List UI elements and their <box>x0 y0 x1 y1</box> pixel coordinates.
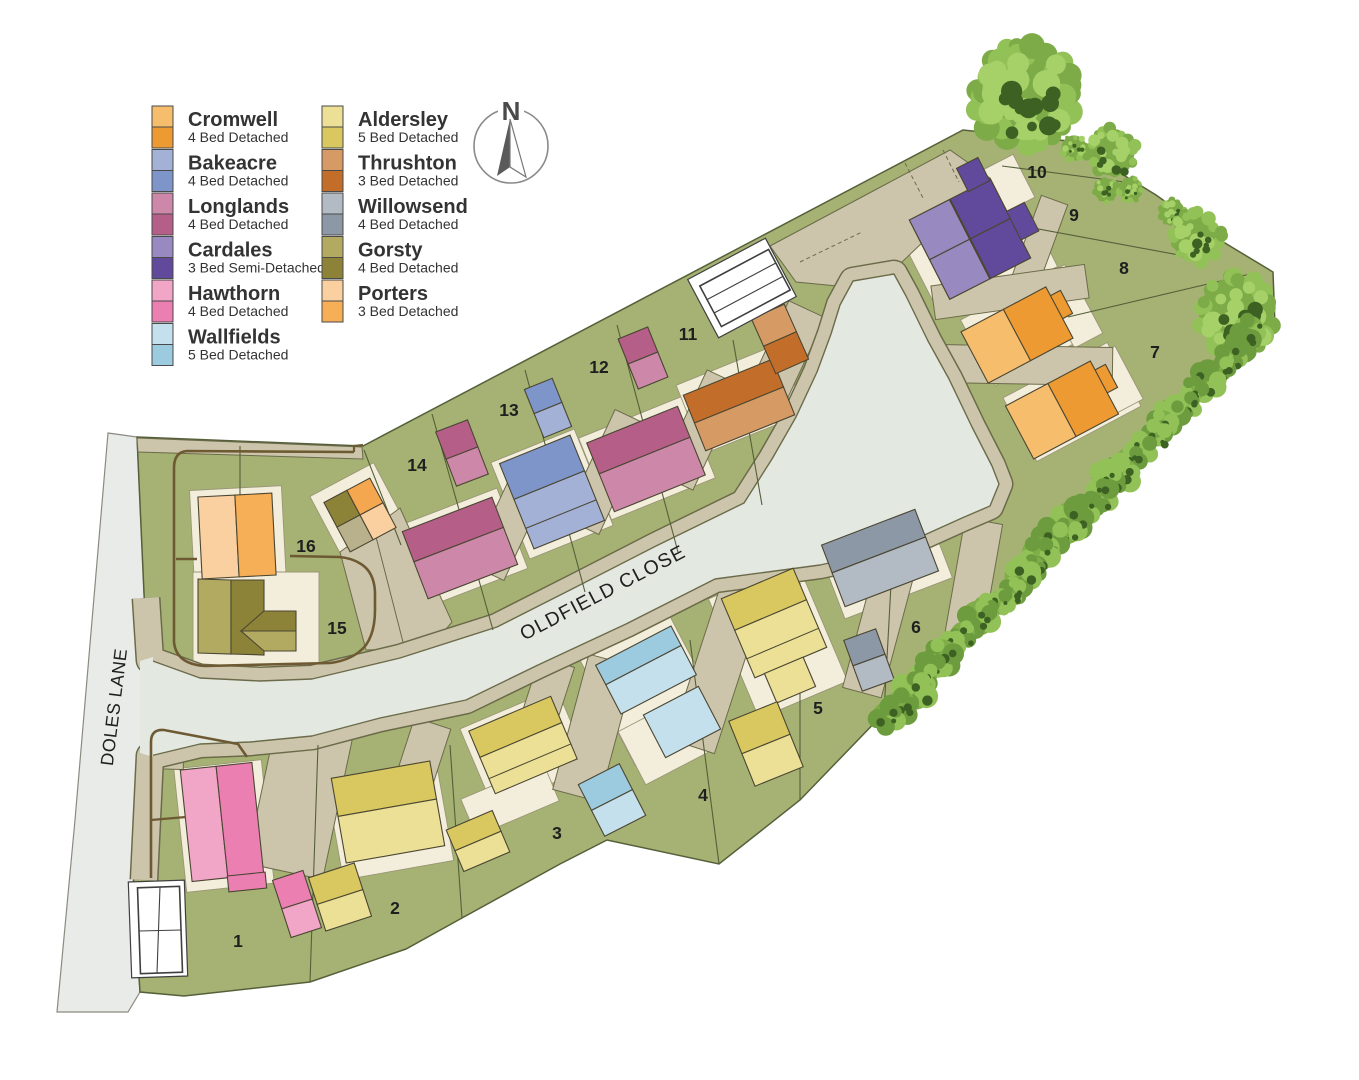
svg-text:1: 1 <box>233 931 243 951</box>
svg-text:Thrushton: Thrushton <box>358 153 457 175</box>
svg-text:8: 8 <box>1119 258 1129 278</box>
svg-text:Wallfields: Wallfields <box>188 327 281 349</box>
svg-text:13: 13 <box>499 400 519 420</box>
svg-text:Cromwell: Cromwell <box>188 109 278 131</box>
svg-text:3 Bed Detached: 3 Bed Detached <box>358 173 458 189</box>
svg-text:5 Bed Detached: 5 Bed Detached <box>358 129 458 145</box>
svg-text:5 Bed Detached: 5 Bed Detached <box>188 347 288 363</box>
svg-text:4 Bed Detached: 4 Bed Detached <box>188 129 288 145</box>
svg-text:Longlands: Longlands <box>188 196 289 218</box>
svg-text:7: 7 <box>1150 342 1160 362</box>
svg-text:Hawthorn: Hawthorn <box>188 283 280 305</box>
svg-text:4: 4 <box>698 785 708 805</box>
svg-text:4 Bed Detached: 4 Bed Detached <box>358 216 458 232</box>
svg-text:Gorsty: Gorsty <box>358 240 423 262</box>
svg-text:6: 6 <box>911 617 921 637</box>
svg-text:14: 14 <box>407 455 427 475</box>
svg-text:16: 16 <box>296 536 316 556</box>
svg-text:4 Bed Detached: 4 Bed Detached <box>188 303 288 319</box>
svg-text:9: 9 <box>1069 205 1079 225</box>
svg-text:3: 3 <box>552 823 562 843</box>
svg-text:12: 12 <box>589 357 609 377</box>
svg-text:Bakeacre: Bakeacre <box>188 153 277 175</box>
svg-text:3 Bed Detached: 3 Bed Detached <box>358 303 458 319</box>
svg-text:Cardales: Cardales <box>188 240 273 262</box>
svg-text:15: 15 <box>327 618 347 638</box>
svg-text:4 Bed Detached: 4 Bed Detached <box>358 260 458 276</box>
svg-text:3 Bed Semi-Detached: 3 Bed Semi-Detached <box>188 260 325 276</box>
svg-text:10: 10 <box>1027 162 1047 182</box>
svg-text:4 Bed Detached: 4 Bed Detached <box>188 216 288 232</box>
svg-text:5: 5 <box>813 698 823 718</box>
svg-text:4 Bed Detached: 4 Bed Detached <box>188 173 288 189</box>
svg-text:Porters: Porters <box>358 283 428 305</box>
svg-text:11: 11 <box>679 324 698 344</box>
svg-text:2: 2 <box>390 898 400 918</box>
svg-text:Aldersley: Aldersley <box>358 109 449 131</box>
svg-text:Willowsend: Willowsend <box>358 196 468 218</box>
